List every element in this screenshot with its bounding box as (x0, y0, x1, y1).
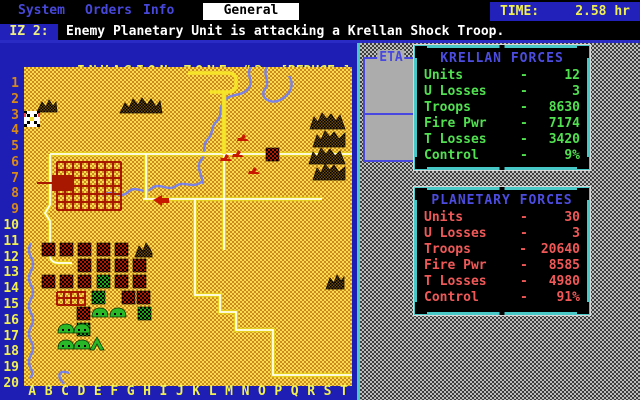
message-row: IZ 2: Enemy Planetary Unit is attacking … (0, 22, 640, 40)
corner-bracket (577, 302, 589, 314)
krellan-stats: Units-12U Losses-3Troops-8630Fire Pwr-71… (414, 68, 590, 164)
corner-bracket (577, 46, 589, 58)
stat-row-control: Control-9% (424, 148, 580, 164)
stat-row-troops: Troops-8630 (424, 100, 580, 116)
stat-row-t-losses: T Losses-3420 (424, 132, 580, 148)
col-label: H (139, 385, 155, 400)
col-label: E (90, 385, 106, 400)
row-label: 17 (3, 330, 19, 343)
row-label: 3 (11, 109, 19, 122)
corner-bracket (415, 157, 427, 169)
col-label: F (106, 385, 122, 400)
row-label: 18 (3, 345, 19, 358)
stat-row-u-losses: U Losses-3 (424, 84, 580, 100)
planetary-panel-title: PLANETARY FORCES (414, 193, 590, 208)
row-label: 7 (11, 172, 19, 185)
col-label: D (73, 385, 89, 400)
col-label: S (319, 385, 335, 400)
city-core (52, 175, 74, 191)
row-label: 11 (3, 235, 19, 248)
corner-bracket (577, 188, 589, 200)
map-row-labels: 1234567891011121314151617181920 (0, 77, 21, 390)
stat-row-fire-pwr: Fire Pwr-8585 (424, 258, 580, 274)
krellan-panel-title: KRELLAN FORCES (414, 51, 590, 66)
menu-item-orders[interactable]: Orders (79, 3, 138, 20)
col-label: Q (287, 385, 303, 400)
row-label: 5 (11, 140, 19, 153)
corner-bracket (415, 302, 427, 314)
row-label: 2 (11, 93, 19, 106)
stat-row-t-losses: T Losses-4980 (424, 274, 580, 290)
zone-badge: IZ 2: (0, 24, 58, 40)
col-label: R (303, 385, 319, 400)
row-label: 16 (3, 314, 19, 327)
row-label: 20 (3, 377, 19, 390)
border-tick (500, 187, 505, 191)
col-label: B (40, 385, 56, 400)
col-label: I (155, 385, 171, 400)
row-label: 6 (11, 156, 19, 169)
map-canvas[interactable] (24, 67, 352, 386)
col-label: N (237, 385, 253, 400)
menu-bar: System Orders Info General TIME: 2.58 hr (0, 0, 640, 22)
col-label: P (270, 385, 286, 400)
corner-bracket (415, 188, 427, 200)
menu-item-general[interactable]: General (203, 3, 299, 20)
row-label: 15 (3, 298, 19, 311)
row-label: 12 (3, 251, 19, 264)
col-label: L (204, 385, 220, 400)
time-value: 2.58 hr (575, 2, 630, 21)
row-label: 13 (3, 266, 19, 279)
corner-bracket (577, 157, 589, 169)
row-label: 14 (3, 282, 19, 295)
map-col-labels: ABCDEFGHIJKLMNOPQRST (24, 385, 352, 400)
menu-item-system[interactable]: System (12, 3, 71, 20)
menu-item-info[interactable]: Info (137, 3, 180, 20)
stat-row-units: Units-12 (424, 68, 580, 84)
invasion-zone-window: INVASION ZONE #2[REDUCE ] 12345678910111… (0, 43, 357, 400)
event-message: Enemy Planetary Unit is attacking a Krel… (66, 24, 504, 40)
border-tick (500, 166, 505, 170)
col-label: G (122, 385, 138, 400)
stat-row-u-losses: U Losses-3 (424, 226, 580, 242)
game-screen: System Orders Info General TIME: 2.58 hr… (0, 0, 640, 400)
stat-row-fire-pwr: Fire Pwr-7174 (424, 116, 580, 132)
stat-row-units: Units-30 (424, 210, 580, 226)
col-label: O (254, 385, 270, 400)
terrain-graphics (24, 67, 352, 386)
col-label: T (336, 385, 352, 400)
border-tick (500, 45, 505, 49)
krellan-forces-panel: KRELLAN FORCES Units-12U Losses-3Troops-… (413, 44, 591, 171)
row-label: 9 (11, 203, 19, 216)
time-display: TIME: 2.58 hr (490, 2, 640, 21)
row-label: 19 (3, 361, 19, 374)
row-label: 4 (11, 124, 19, 137)
time-label: TIME: (500, 2, 539, 21)
planetary-stats: Units-30U Losses-3Troops-20640Fire Pwr-8… (414, 210, 590, 306)
stat-row-control: Control-91% (424, 290, 580, 306)
stat-row-troops: Troops-20640 (424, 242, 580, 258)
col-label: A (24, 385, 40, 400)
border-tick (500, 311, 505, 315)
col-label: K (188, 385, 204, 400)
river (29, 67, 292, 384)
loop-road (188, 73, 236, 154)
flag-unit-icon[interactable] (24, 111, 40, 127)
eta-divider (365, 113, 417, 115)
status-area: ETA KRELLAN FORCES Units-12U Losses-3Tro… (360, 43, 640, 400)
road-network (45, 73, 352, 375)
enemy-units[interactable] (153, 134, 260, 206)
row-label: 8 (11, 187, 19, 200)
col-label: M (221, 385, 237, 400)
planetary-forces-panel: PLANETARY FORCES Units-30U Losses-3Troop… (413, 186, 591, 316)
row-label: 10 (3, 219, 19, 232)
eta-panel: ETA (363, 57, 419, 162)
col-label: J (172, 385, 188, 400)
eta-title: ETA (377, 50, 404, 65)
row-label: 1 (11, 77, 19, 90)
corner-bracket (415, 46, 427, 58)
col-label: C (57, 385, 73, 400)
